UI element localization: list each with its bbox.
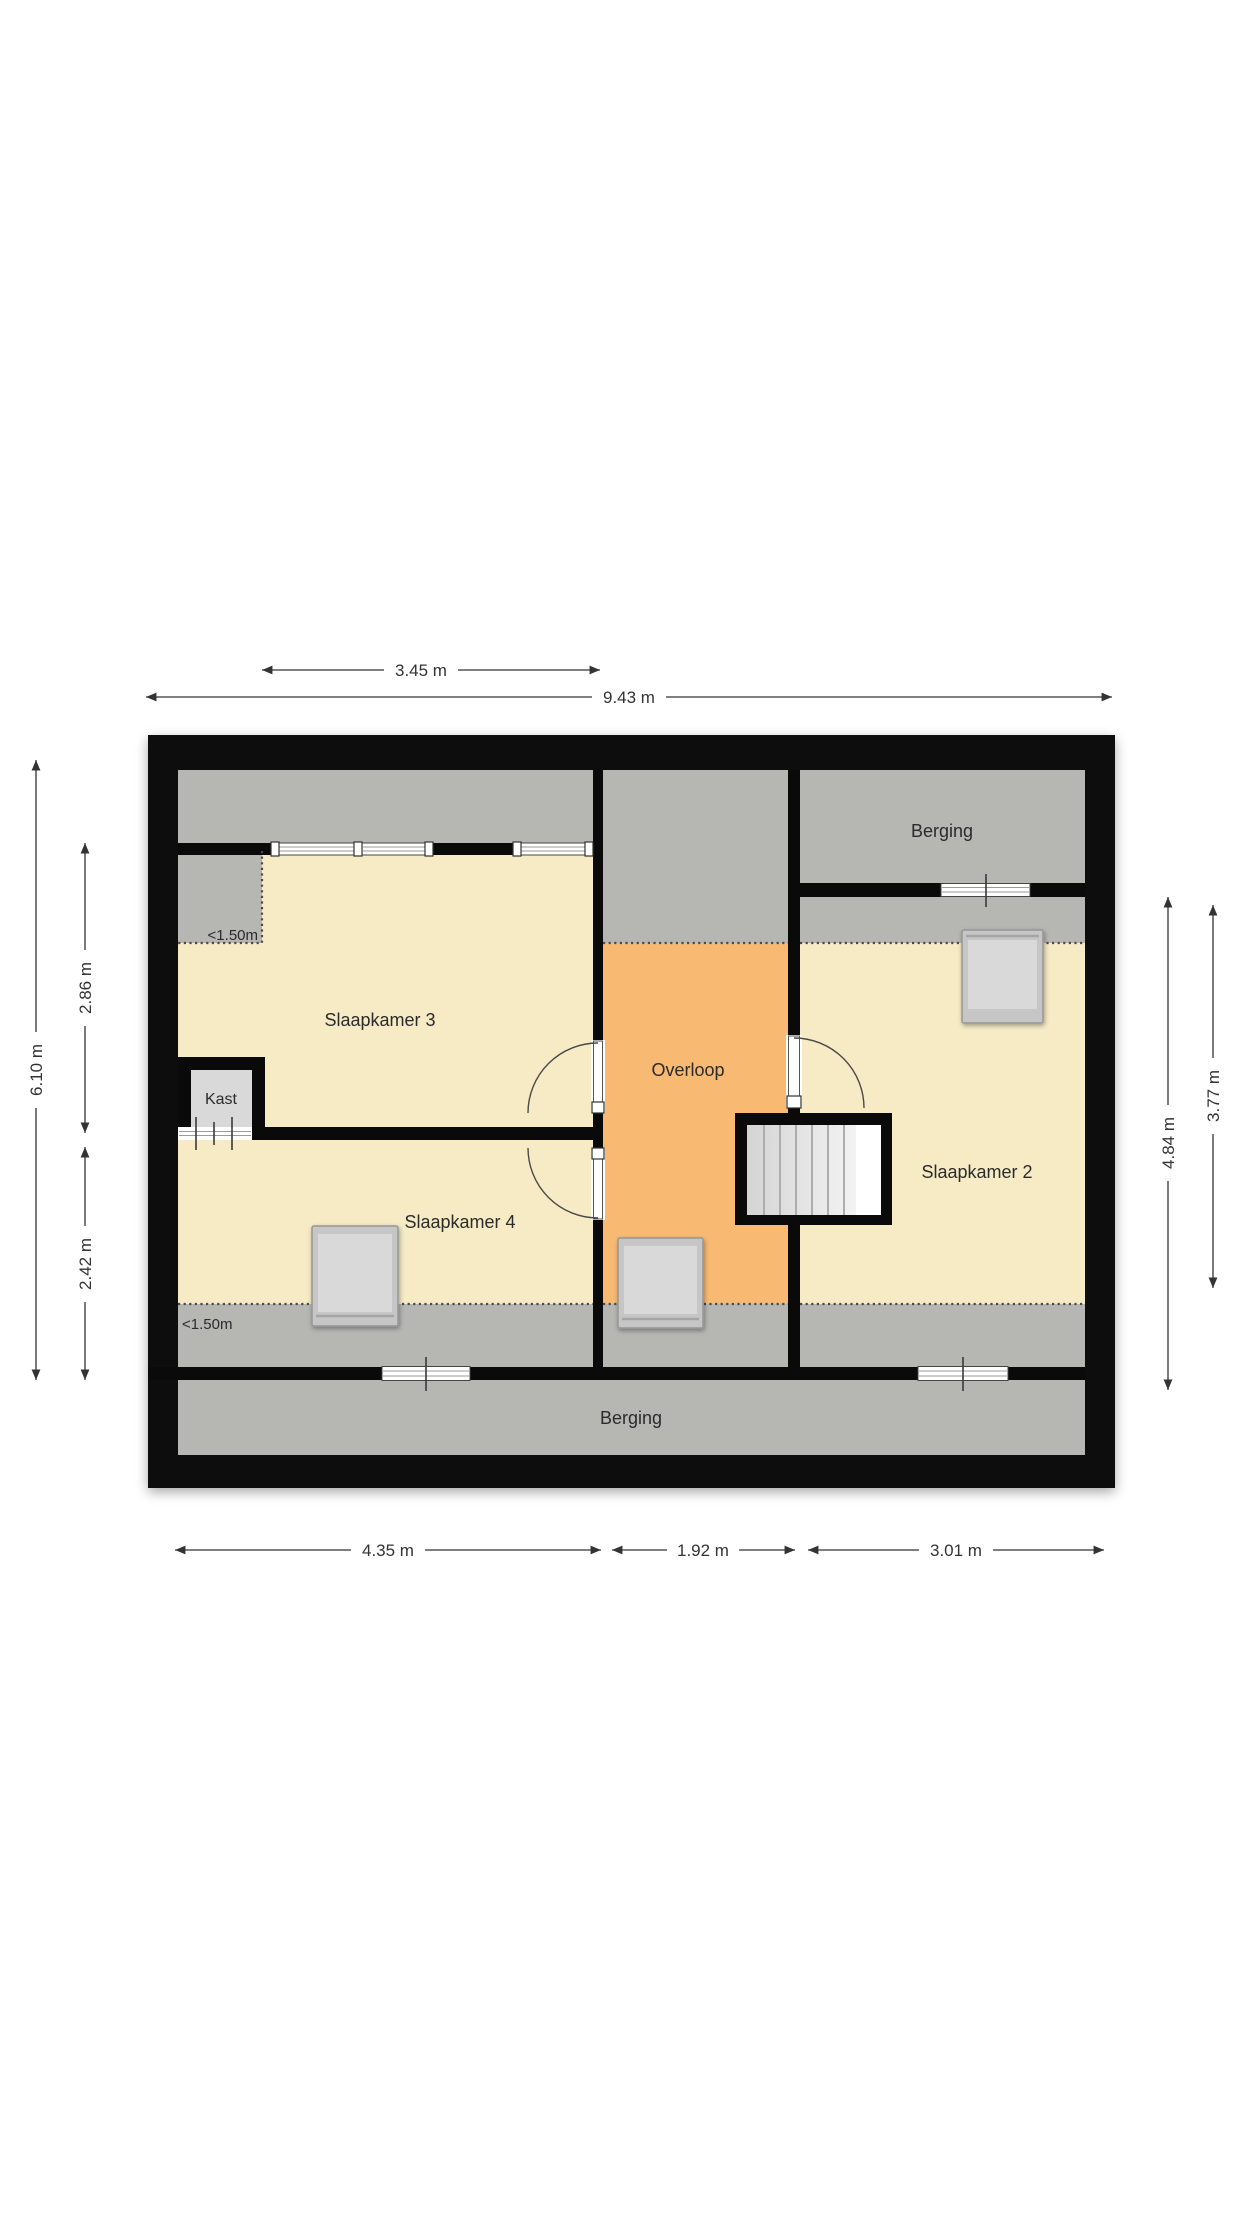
label-low-headroom-top: <1.50m <box>208 927 258 944</box>
label-low-headroom-bottom: <1.50m <box>182 1316 232 1333</box>
dim-label-top-total: 9.43 m <box>603 688 655 707</box>
dim-label-right-total: 4.84 m <box>1159 1117 1178 1169</box>
label-berging-bottom: Berging <box>600 1408 662 1428</box>
label-slaapkamer-2: Slaapkamer 2 <box>921 1162 1032 1182</box>
dim-label-bottom-center: 1.92 m <box>677 1541 729 1560</box>
dimension-bottom-left: 4.35 m <box>175 1539 601 1560</box>
roof-window-icon-slaapkamer-4 <box>312 1226 398 1326</box>
dim-label-right-section: 3.77 m <box>1204 1070 1223 1122</box>
roof-window-icon-overloop <box>618 1238 703 1328</box>
floorplan-page: Slaapkamer 3 Slaapkamer 4 Slaapkamer 2 O… <box>0 0 1250 2222</box>
dim-label-bottom-left: 4.35 m <box>362 1541 414 1560</box>
floorplan-canvas: Slaapkamer 3 Slaapkamer 4 Slaapkamer 2 O… <box>0 0 1250 2222</box>
dimension-top-section: 3.45 m <box>262 659 600 680</box>
dimension-right-section: 3.77 m <box>1202 905 1223 1288</box>
dim-label-left-lower: 2.42 m <box>76 1238 95 1290</box>
dim-label-left-upper: 2.86 m <box>76 962 95 1014</box>
dimension-bottom-center: 1.92 m <box>612 1539 795 1560</box>
dim-label-left-total: 6.10 m <box>27 1044 46 1096</box>
label-slaapkamer-4: Slaapkamer 4 <box>404 1212 515 1232</box>
label-kast: Kast <box>205 1091 238 1108</box>
dimension-left-upper: 2.86 m <box>74 843 95 1133</box>
dim-label-bottom-right: 3.01 m <box>930 1541 982 1560</box>
room-areas <box>178 770 1085 1455</box>
dim-label-top-section: 3.45 m <box>395 661 447 680</box>
zone-low-top-left <box>178 770 593 843</box>
zone-low-slaapkamer-2-bottom <box>800 1304 1085 1367</box>
label-overloop: Overloop <box>651 1060 724 1080</box>
label-berging-top: Berging <box>911 821 973 841</box>
window-icon-sk3-row <box>271 842 593 856</box>
dimension-left-lower: 2.42 m <box>74 1147 95 1380</box>
dimension-bottom-right: 3.01 m <box>808 1539 1104 1560</box>
staircase <box>735 1113 892 1225</box>
label-slaapkamer-3: Slaapkamer 3 <box>324 1010 435 1030</box>
zone-low-landing <box>603 770 788 943</box>
roof-window-icon-slaapkamer-2 <box>962 930 1043 1023</box>
dimension-left-total: 6.10 m <box>25 760 46 1380</box>
dimension-right-total: 4.84 m <box>1157 897 1178 1390</box>
dimension-top-total: 9.43 m <box>146 686 1112 707</box>
